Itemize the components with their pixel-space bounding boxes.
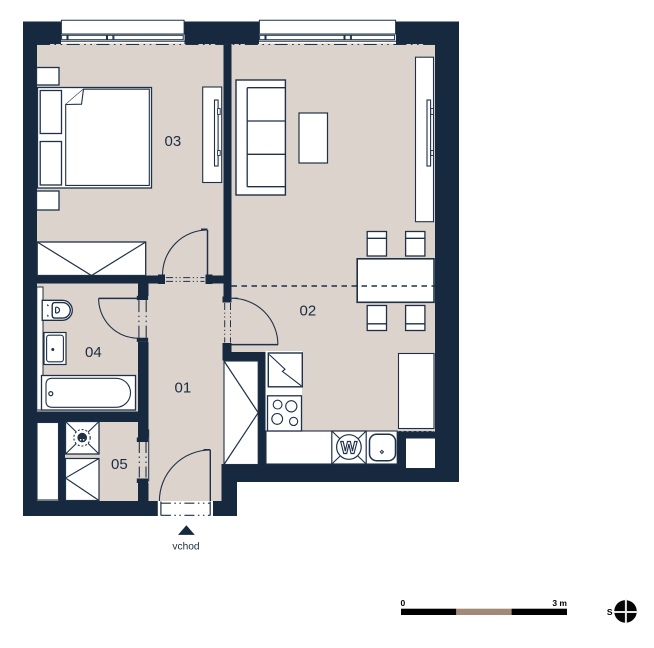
svg-text:3 m: 3 m	[552, 598, 567, 608]
svg-text:W: W	[341, 438, 358, 458]
svg-text:04: 04	[85, 344, 102, 361]
svg-text:S: S	[607, 607, 613, 617]
svg-text:01: 01	[175, 380, 192, 397]
svg-text:02: 02	[300, 303, 317, 320]
svg-text:vchod: vchod	[172, 542, 200, 553]
svg-text:05: 05	[111, 456, 128, 473]
svg-text:0: 0	[401, 598, 406, 608]
svg-text:03: 03	[165, 133, 182, 150]
